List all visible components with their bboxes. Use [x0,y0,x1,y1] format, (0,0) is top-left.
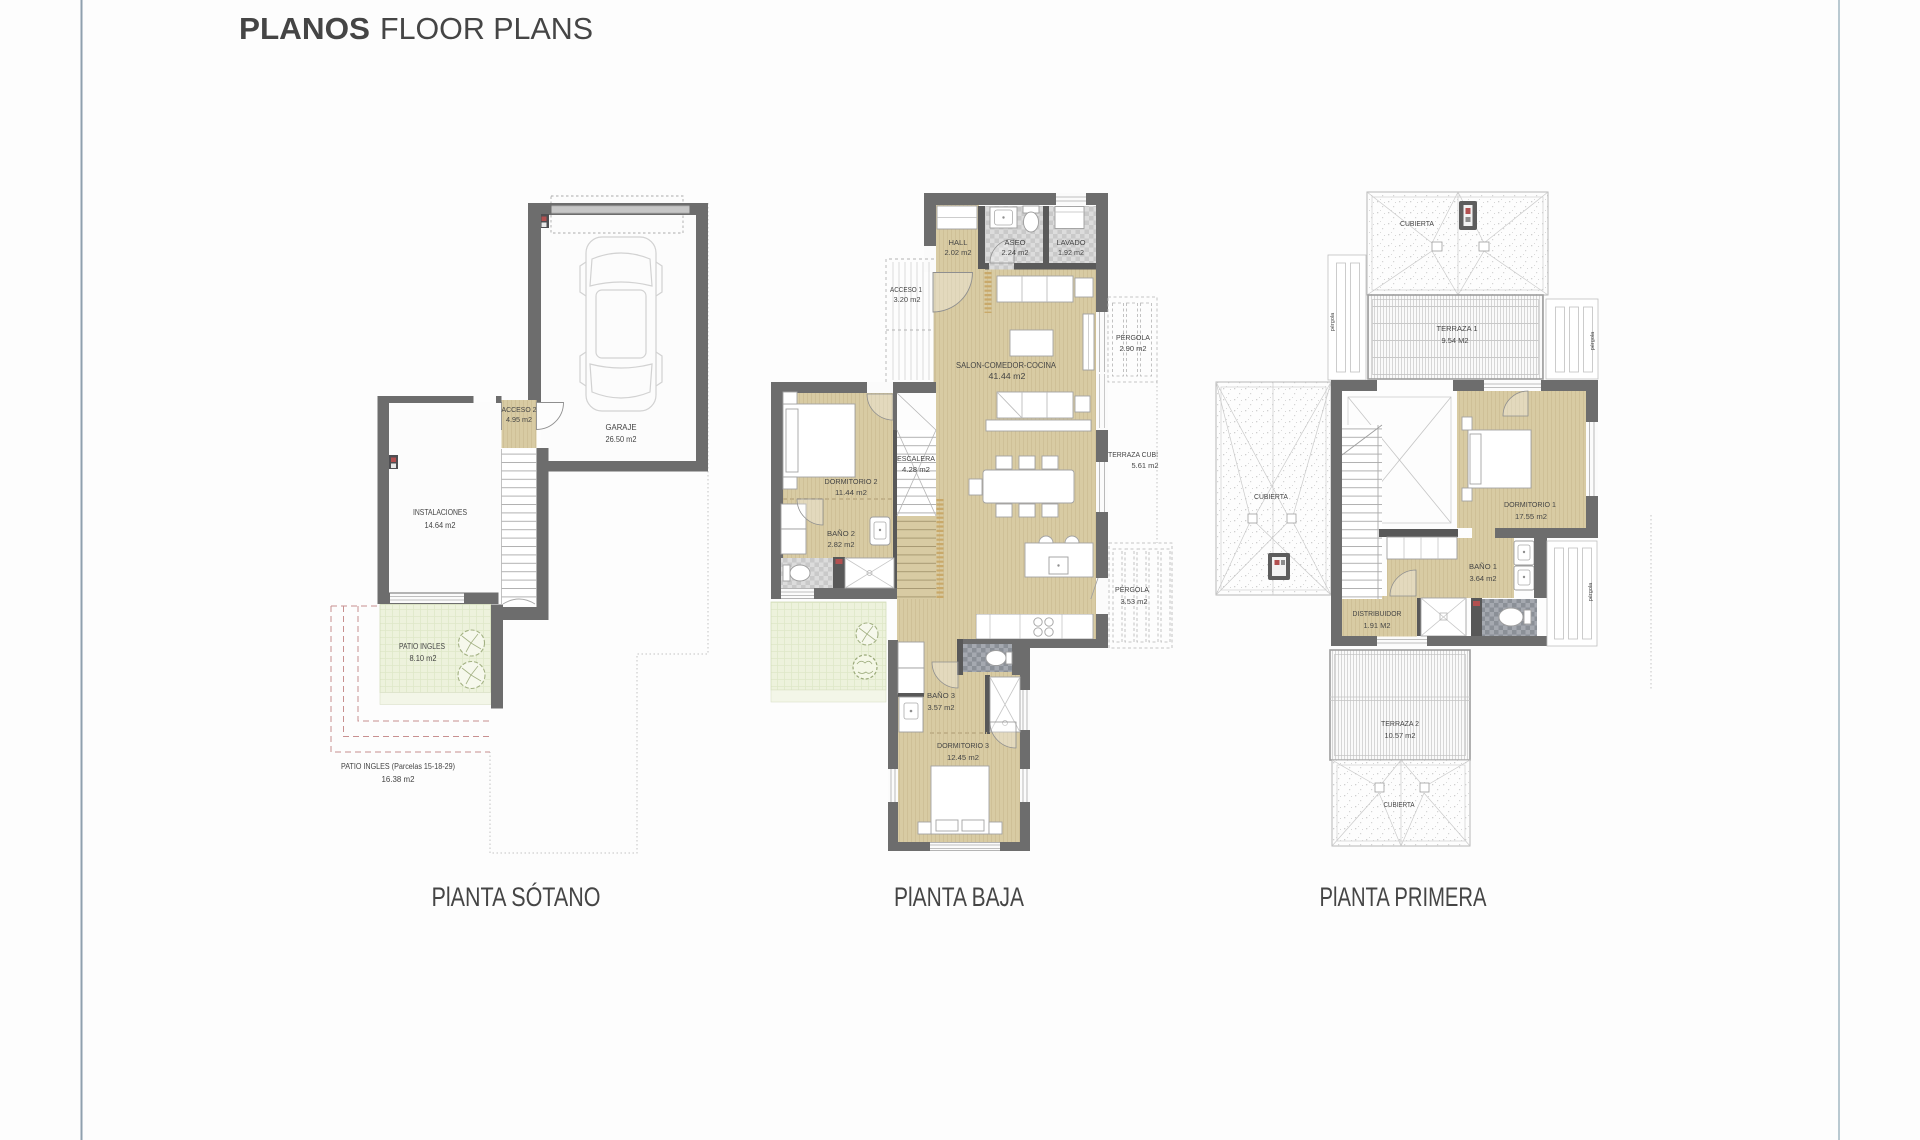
svg-text:3.57 m2: 3.57 m2 [928,703,955,712]
svg-text:3.53 m2: 3.53 m2 [1121,597,1148,606]
svg-text:BAÑO 1: BAÑO 1 [1469,562,1497,571]
svg-text:PATIO INGLES (Parcelas 15-18-2: PATIO INGLES (Parcelas 15-18-29) [341,762,455,771]
svg-text:ASEO: ASEO [1005,238,1026,247]
svg-text:4.28 m2: 4.28 m2 [902,465,930,474]
svg-text:DORMITORIO 1: DORMITORIO 1 [1504,500,1556,509]
svg-text:16.38 m2: 16.38 m2 [382,775,416,784]
svg-text:PÉRGOLA: PÉRGOLA [1115,585,1149,594]
svg-text:TERRAZA 2: TERRAZA 2 [1381,719,1419,728]
svg-text:CUBIERTA: CUBIERTA [1400,219,1434,228]
svg-text:ACCESO 2: ACCESO 2 [502,405,537,414]
svg-text:1.92 m2: 1.92 m2 [1058,248,1084,257]
svg-text:2.02 m2: 2.02 m2 [945,248,972,257]
svg-text:PATIO INGLES: PATIO INGLES [399,642,445,651]
svg-text:pérgola: pérgola [1330,312,1336,331]
svg-text:14.64 m2: 14.64 m2 [425,521,457,530]
svg-text:ACCESO 1: ACCESO 1 [890,285,922,294]
svg-text:BAÑO 2: BAÑO 2 [827,529,855,538]
svg-text:10.57 m2: 10.57 m2 [1385,731,1416,740]
svg-text:TERRAZA CUBI: TERRAZA CUBI [1108,450,1158,459]
svg-text:41.44 m2: 41.44 m2 [989,372,1027,381]
svg-text:5.61 m2: 5.61 m2 [1132,461,1159,470]
svg-text:pérgola: pérgola [1590,331,1596,350]
svg-text:3.20 m2: 3.20 m2 [894,295,921,304]
svg-text:BAÑO 3: BAÑO 3 [927,691,955,700]
svg-text:PlANTA BAJA: PlANTA BAJA [894,882,1024,912]
svg-text:CUBIERTA: CUBIERTA [1384,800,1415,809]
svg-text:DORMITORIO 2: DORMITORIO 2 [825,477,878,486]
svg-text:DORMITORIO 3: DORMITORIO 3 [937,741,989,750]
svg-text:DISTRIBUIDOR: DISTRIBUIDOR [1353,609,1403,618]
svg-text:3.64 m2: 3.64 m2 [1470,574,1497,583]
svg-text:2.90 m2: 2.90 m2 [1120,344,1147,353]
svg-text:12.45 m2: 12.45 m2 [947,753,979,762]
svg-text:HALL: HALL [949,238,968,247]
svg-text:8.10 m2: 8.10 m2 [410,654,438,663]
svg-text:pérgola: pérgola [1588,582,1594,601]
svg-text:PLANOS: PLANOS [239,12,370,46]
svg-text:9.54 M2: 9.54 M2 [1442,336,1469,345]
svg-text:2.24 m2: 2.24 m2 [1002,248,1029,257]
svg-text:17.55 m2: 17.55 m2 [1515,512,1547,521]
svg-text:INSTALACIONES: INSTALACIONES [413,508,467,517]
svg-text:PlANTA PRIMERA: PlANTA PRIMERA [1320,882,1487,912]
svg-text:PÉRGOLA: PÉRGOLA [1116,333,1150,342]
svg-text:2.82 m2: 2.82 m2 [828,540,855,549]
svg-text:FLOOR PLANS: FLOOR PLANS [380,12,593,46]
svg-text:ESCALERA: ESCALERA [897,454,935,463]
svg-text:11.44 m2: 11.44 m2 [835,488,867,497]
svg-text:CUBIERTA: CUBIERTA [1254,492,1288,501]
svg-text:26.50 m2: 26.50 m2 [606,435,638,444]
svg-text:4.95 m2: 4.95 m2 [506,415,532,424]
svg-text:1.91 M2: 1.91 M2 [1364,621,1391,630]
svg-text:GARAJE: GARAJE [606,422,637,432]
svg-text:SALON-COMEDOR-COCINA: SALON-COMEDOR-COCINA [956,361,1057,370]
svg-text:TERRAZA 1: TERRAZA 1 [1437,324,1478,333]
svg-text:LAVADO: LAVADO [1057,238,1086,247]
svg-text:PlANTA SÓTANO: PlANTA SÓTANO [432,881,601,912]
